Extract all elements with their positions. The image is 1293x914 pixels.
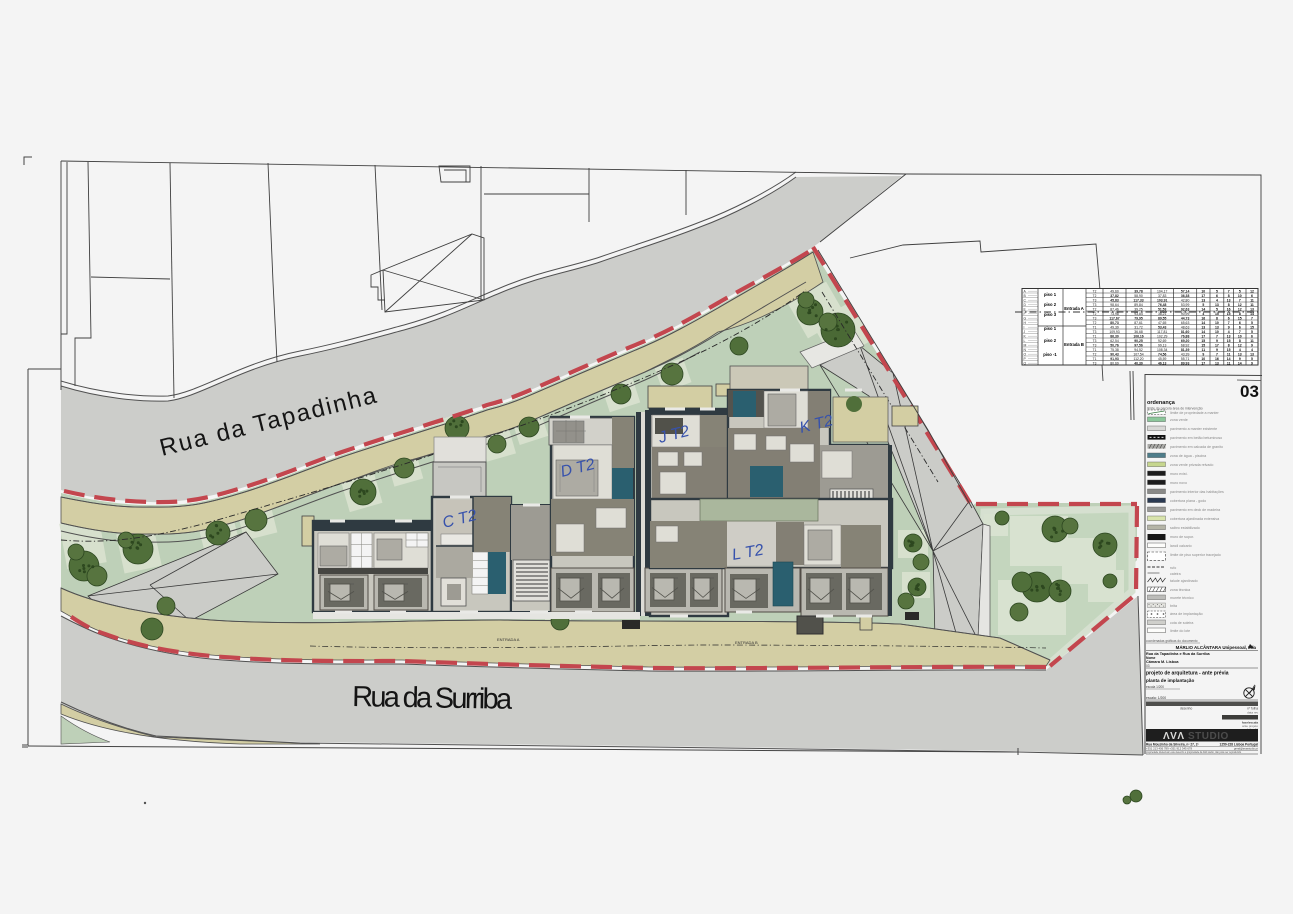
svg-text:talude ajardinado: talude ajardinado [1170,579,1198,583]
svg-text:74,56: 74,56 [1158,352,1167,356]
svg-text:pavimento a manter existente: pavimento a manter existente [1170,427,1217,431]
svg-text:pavimento interior das habitaç: pavimento interior das habitações [1170,490,1224,494]
svg-text:T2: T2 [1093,294,1097,298]
svg-text:J: J [1024,330,1026,334]
svg-text:47,65: 47,65 [1158,321,1167,325]
svg-text:7: 7 [1216,334,1218,338]
svg-text:7: 7 [1228,289,1230,293]
svg-text:107,54: 107,54 [1133,352,1143,356]
svg-text:T1: T1 [1093,325,1097,329]
svg-text:lancil calcario: lancil calcario [1170,544,1192,548]
svg-text:9: 9 [1228,325,1230,329]
svg-text:11: 11 [1250,303,1254,307]
svg-text:Rua da Surriba: Rua da Surriba [352,681,513,716]
svg-text:90,25: 90,25 [1134,339,1143,343]
svg-text:planta de implantação: planta de implantação [1146,678,1194,683]
svg-text:MÁRLIO ALCÂNTARA Unipessoal, L: MÁRLIO ALCÂNTARA Unipessoal, Lda [1176,645,1257,650]
svg-text:O: O [1024,352,1027,356]
svg-text:10: 10 [1238,334,1242,338]
svg-text:caleira: caleira [1170,572,1181,576]
svg-text:T3: T3 [1093,343,1097,347]
svg-text:8: 8 [1228,294,1230,298]
svg-text:muro novo: muro novo [1170,481,1187,485]
svg-text:17: 17 [1201,334,1205,338]
svg-text:15: 15 [1201,343,1205,347]
svg-text:piso 2: piso 2 [1044,302,1057,307]
svg-text:75,38: 75,38 [1110,348,1119,352]
svg-text:piso 3: piso 3 [1044,312,1057,317]
svg-text:6: 6 [1251,334,1253,338]
svg-text:92,69: 92,69 [1158,339,1167,343]
svg-text:15: 15 [1238,316,1242,320]
svg-text:piso 1: piso 1 [1044,292,1057,297]
svg-text:99,13: 99,13 [1158,343,1167,347]
svg-text:7: 7 [1239,330,1241,334]
svg-text:6: 6 [1239,325,1241,329]
svg-text:desenho: desenho [1180,707,1192,711]
svg-text:Rua da Tapadinha e Rua da Surr: Rua da Tapadinha e Rua da Surriba [1146,652,1211,656]
svg-text:11: 11 [1227,361,1231,365]
svg-text:4: 4 [1216,298,1218,302]
svg-text:escala 1/200: escala 1/200 [1146,685,1164,689]
svg-text:14: 14 [1201,307,1205,311]
svg-text:53,43: 53,43 [1158,325,1167,329]
svg-text:cota de soleira: cota de soleira [1170,621,1193,625]
svg-text:5: 5 [1202,303,1204,307]
svg-text:ordenança: ordenança [1147,400,1176,406]
svg-text:T2: T2 [1093,352,1097,356]
svg-text:T2: T2 [1093,307,1097,311]
svg-text:31,72: 31,72 [1134,325,1143,329]
svg-text:7: 7 [1251,316,1253,320]
svg-text:I: I [1024,325,1025,329]
svg-text:T3: T3 [1093,298,1097,302]
svg-text:36,38: 36,38 [1181,294,1190,298]
svg-text:ΛVΛ: ΛVΛ [1163,731,1185,742]
svg-text:49,39: 49,39 [1110,325,1119,329]
svg-text:T1: T1 [1093,357,1097,361]
svg-text:T3: T3 [1093,316,1097,320]
svg-text:109,93: 109,93 [1109,330,1119,334]
svg-text:44,73: 44,73 [1181,316,1190,320]
svg-text:97,56: 97,56 [1134,343,1143,347]
svg-text:117,81: 117,81 [1157,330,1167,334]
svg-text:5: 5 [1251,357,1253,361]
svg-text:escala: 1/200: escala: 1/200 [1146,696,1166,700]
svg-text:16: 16 [1227,307,1231,311]
svg-text:coordenadas gráficas do docume: coordenadas gráficas do documento [1146,639,1198,643]
svg-text:98,64: 98,64 [1110,303,1119,307]
svg-text:zona verde: zona verde [1170,418,1188,422]
svg-text:limite de piso superior tracej: limite de piso superior tracejado [1170,553,1221,557]
svg-text:9: 9 [1251,343,1253,347]
svg-text:117,67: 117,67 [1109,316,1119,320]
svg-text:muro de supor.: muro de supor. [1170,535,1194,539]
svg-text:limite do lote: limite do lote [1170,629,1190,633]
svg-text:piso 2: piso 2 [1044,338,1057,343]
svg-text:17: 17 [1201,361,1205,365]
svg-text:T3: T3 [1093,339,1097,343]
svg-text:T2: T2 [1093,289,1097,293]
svg-text:10: 10 [1238,294,1242,298]
svg-text:112,20: 112,20 [1133,357,1143,361]
svg-text:6: 6 [1239,321,1241,325]
svg-text:8: 8 [1228,303,1230,307]
svg-text:86,30: 86,30 [1110,334,1119,338]
svg-text:15: 15 [1227,348,1231,352]
svg-text:13: 13 [1227,298,1231,302]
svg-text:89,55: 89,55 [1158,316,1167,320]
svg-text:piso 1: piso 1 [1044,326,1057,331]
svg-text:40,30: 40,30 [1134,361,1143,365]
svg-text:9: 9 [1216,339,1218,343]
svg-text:89,93: 89,93 [1181,361,1190,365]
svg-text:6: 6 [1251,294,1253,298]
svg-text:pavimento em betão betuminoso: pavimento em betão betuminoso [1170,436,1222,440]
svg-text:5: 5 [1239,289,1241,293]
svg-text:76,48: 76,48 [1158,303,1167,307]
svg-text:102,29: 102,29 [1157,334,1167,338]
svg-text:49,60: 49,60 [1110,289,1119,293]
svg-text:zona de água - piscina: zona de água - piscina [1170,454,1206,458]
svg-text:48,63: 48,63 [1181,325,1190,329]
svg-text:limite de propriedade a manter: limite de propriedade a manter [1170,411,1220,415]
svg-text:37,83: 37,83 [1158,294,1167,298]
svg-text:03: 03 [1146,664,1150,668]
svg-text:T2: T2 [1093,321,1097,325]
svg-text:5: 5 [1251,321,1253,325]
svg-text:14: 14 [1201,330,1205,334]
svg-text:80,69: 80,69 [1110,361,1119,365]
svg-text:57,14: 57,14 [1181,289,1190,293]
svg-text:65,63: 65,63 [1181,321,1190,325]
svg-text:92,63: 92,63 [1181,307,1190,311]
svg-text:10: 10 [1201,289,1205,293]
svg-text:10: 10 [1215,330,1219,334]
svg-text:45,59: 45,59 [1158,357,1167,361]
svg-text:5: 5 [1216,307,1218,311]
svg-text:94,52: 94,52 [1134,348,1143,352]
svg-text:13: 13 [1215,303,1219,307]
svg-text:L: L [1024,339,1026,343]
svg-text:46,13: 46,13 [1158,361,1167,365]
svg-text:15: 15 [1250,325,1254,329]
svg-text:7: 7 [1228,321,1230,325]
svg-text:piso -1: piso -1 [1043,352,1057,357]
svg-text:9: 9 [1251,361,1253,365]
svg-text:Entrada A: Entrada A [1064,306,1084,311]
svg-text:15: 15 [1201,339,1205,343]
svg-text:muro exist.: muro exist. [1170,472,1188,476]
svg-text:T1: T1 [1093,348,1097,352]
svg-text:11: 11 [1250,298,1254,302]
svg-text:81,60: 81,60 [1181,330,1190,334]
svg-text:90,43: 90,43 [1110,352,1119,356]
svg-text:17: 17 [1201,294,1205,298]
svg-text:7: 7 [1216,352,1218,356]
svg-text:12: 12 [1250,289,1254,293]
svg-text:8: 8 [1239,339,1241,343]
svg-text:pavimento em deck de madeira: pavimento em deck de madeira [1170,508,1220,512]
svg-text:81,39: 81,39 [1181,348,1190,352]
svg-text:39,25: 39,25 [1134,307,1143,311]
svg-text:8: 8 [1228,343,1230,347]
svg-text:6: 6 [1228,316,1230,320]
svg-text:37,82: 37,82 [1110,294,1119,298]
svg-text:87,61: 87,61 [1134,321,1143,325]
svg-text:16: 16 [1201,316,1205,320]
svg-text:13: 13 [1227,334,1231,338]
svg-text:11: 11 [1202,348,1206,352]
svg-text:13: 13 [1215,325,1219,329]
svg-text:T1: T1 [1093,334,1097,338]
svg-text:zona verde privada relvado: zona verde privada relvado [1170,463,1213,467]
svg-text:Câmara M. Lisboa: Câmara M. Lisboa [1146,660,1179,664]
svg-text:12: 12 [1238,303,1242,307]
svg-text:79,95: 79,95 [1134,316,1143,320]
svg-text:13: 13 [1215,361,1219,365]
svg-text:9: 9 [1216,348,1218,352]
svg-text:62,54: 62,54 [1110,339,1119,343]
svg-text:87,46: 87,46 [1110,307,1119,311]
svg-text:+351 213 456 789 +351 912 3: +351 213 456 789 +351 912 345 678 [1146,747,1192,751]
svg-text:4: 4 [1228,330,1230,334]
svg-text:6: 6 [1216,294,1218,298]
svg-text:Q: Q [1024,361,1027,365]
svg-text:58,90: 58,90 [1134,294,1143,298]
svg-text:10: 10 [1215,321,1219,325]
svg-text:15: 15 [1227,339,1231,343]
svg-text:T3: T3 [1093,361,1097,365]
svg-text:13: 13 [1250,352,1254,356]
svg-text:39,78: 39,78 [1134,289,1143,293]
svg-text:16: 16 [1215,357,1219,361]
svg-text:103,91: 103,91 [1157,298,1167,302]
svg-text:7: 7 [1239,298,1241,302]
svg-text:14: 14 [1201,321,1205,325]
svg-text:projeto de arquitetura - ante: projeto de arquitetura - ante prévia [1146,671,1229,677]
svg-text:69,20: 69,20 [1181,339,1190,343]
svg-text:106,16: 106,16 [1133,334,1143,338]
svg-text:11: 11 [1227,352,1231,356]
svg-text:4: 4 [1239,348,1241,352]
svg-text:rufo: rufo [1170,566,1176,570]
svg-text:12: 12 [1238,343,1242,347]
svg-text:11: 11 [1250,339,1254,343]
svg-text:36,68: 36,68 [1134,330,1143,334]
svg-text:89,84: 89,84 [1134,303,1143,307]
svg-text:4: 4 [1251,348,1253,352]
svg-text:área de implantação: área de implantação [1170,612,1203,616]
svg-text:Entrada B: Entrada B [1064,342,1084,347]
svg-text:geral@avastudio.pt: geral@avastudio.pt [1234,747,1258,751]
svg-text:50,76: 50,76 [1110,343,1119,347]
svg-text:8: 8 [1216,316,1218,320]
svg-text:M: M [1024,343,1027,347]
svg-text:12: 12 [1238,307,1242,311]
svg-text:cobertura plana - godo: cobertura plana - godo [1170,499,1206,503]
svg-text:76,88: 76,88 [1181,334,1190,338]
svg-text:9: 9 [1239,357,1241,361]
svg-text:13: 13 [1201,298,1205,302]
svg-text:13: 13 [1238,352,1242,356]
svg-text:brita: brita [1170,604,1177,608]
svg-text:17: 17 [1215,343,1219,347]
svg-text:68,92: 68,92 [1181,343,1190,347]
svg-text:117,33: 117,33 [1133,298,1143,302]
svg-text:53,99: 53,99 [1181,303,1190,307]
svg-text:14: 14 [1227,357,1231,361]
svg-text:saibro estabilizado: saibro estabilizado [1170,526,1200,530]
svg-text:13: 13 [1201,325,1205,329]
svg-text:104,17: 104,17 [1157,289,1167,293]
svg-text:murete técnico: murete técnico [1170,596,1194,600]
svg-text:5: 5 [1251,330,1253,334]
svg-text:42,80: 42,80 [1181,298,1190,302]
svg-text:zona técnica: zona técnica [1170,588,1190,592]
svg-text:STUDIO: STUDIO [1188,731,1229,742]
svg-text:pavimento em calcada de granit: pavimento em calcada de granito [1170,445,1223,449]
svg-text:51,53: 51,53 [1158,307,1167,311]
svg-text:T3: T3 [1093,330,1097,334]
svg-text:10: 10 [1201,357,1205,361]
svg-text:cobertura ajardinada extensiva: cobertura ajardinada extensiva [1170,517,1219,521]
svg-text:9: 9 [1202,352,1204,356]
svg-text:14: 14 [1238,361,1242,365]
svg-text:T3: T3 [1093,303,1097,307]
svg-text:5: 5 [1216,289,1218,293]
svg-text:45,83: 45,83 [1110,298,1119,302]
svg-text:108,34: 108,34 [1157,348,1167,352]
svg-text:03: 03 [1240,382,1259,401]
svg-text:55,71: 55,71 [1181,357,1190,361]
svg-text:13: 13 [1250,307,1254,311]
svg-text:80,73: 80,73 [1110,321,1119,325]
svg-text:91,93: 91,93 [1110,357,1119,361]
svg-text:data rev: data rev [1247,711,1258,715]
svg-text:43,39: 43,39 [1181,352,1190,356]
svg-text:G: G [1024,316,1027,320]
